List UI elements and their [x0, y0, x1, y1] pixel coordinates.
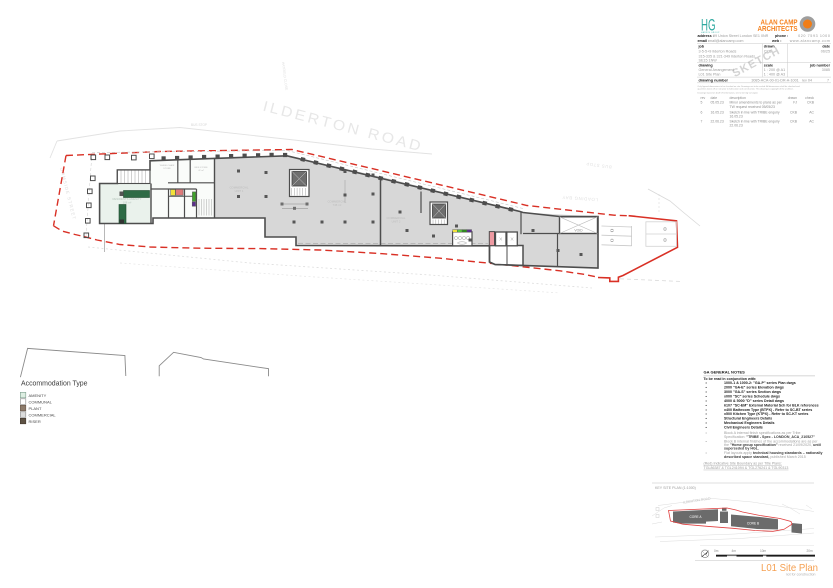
svg-text:COMMERCIAL: COMMERCIAL [29, 412, 57, 417]
svg-text:job: job [698, 45, 705, 49]
svg-text:CKB: CKB [790, 120, 798, 124]
svg-text:described space standard, publ: described space standard, published Marc… [724, 455, 806, 459]
svg-text:20m: 20m [807, 549, 814, 553]
svg-text:AC: AC [809, 120, 814, 124]
svg-text:KEY SITE PLAN (1:1000): KEY SITE PLAN (1:1000) [655, 486, 696, 490]
svg-text:BIKE STORE: BIKE STORE [194, 167, 208, 169]
svg-text:CKB: CKB [807, 101, 815, 105]
svg-text:www.alancamp.com: www.alancamp.com [790, 39, 831, 43]
svg-text:VOID: VOID [574, 229, 583, 233]
svg-text:6: 6 [701, 111, 703, 115]
svg-text:drawing number: drawing number [699, 78, 729, 82]
svg-text:05.05.23: 05.05.23 [711, 101, 724, 105]
svg-text:7: 7 [701, 120, 703, 124]
svg-text:Civil Engineers Details: Civil Engineers Details [724, 426, 763, 430]
svg-text:web :: web : [771, 39, 781, 43]
svg-text:L01 Site Plan: L01 Site Plan [699, 73, 721, 77]
svg-text:BUS STOP: BUS STOP [191, 123, 207, 127]
svg-text:22.06.23: 22.06.23 [730, 124, 743, 128]
svg-text:drawn: drawn [788, 96, 797, 100]
svg-text:CORE A: CORE A [689, 515, 702, 519]
svg-text:job number: job number [809, 64, 831, 68]
svg-text:description: description [730, 96, 747, 100]
svg-text:General Arrangement: General Arrangement [699, 68, 734, 72]
svg-text:x500 Kitchen Type (KTPX) - Ref: x500 Kitchen Type (KTPX) - Refer to SC-K… [724, 412, 808, 416]
svg-text:4000 & 5000 "D" series Detail: 4000 & 5000 "D" series Detail dwgs [724, 399, 784, 403]
svg-text:3000 "GA-S" series Section dwg: 3000 "GA-S" series Section dwgs [724, 390, 781, 394]
svg-text:1 : 400 @ A3: 1 : 400 @ A3 [764, 73, 785, 77]
svg-text:UNIT 2: UNIT 2 [392, 220, 401, 224]
svg-text:check: check [805, 96, 814, 100]
svg-text:(Red) Indicative Site Boundary: (Red) Indicative Site Boundary as per Ti… [704, 461, 782, 465]
svg-text:drawing: drawing [699, 64, 713, 68]
svg-text:superseded by HGL.: superseded by HGL. [724, 447, 759, 451]
svg-text:GA GENERAL NOTES: GA GENERAL NOTES [704, 370, 746, 375]
svg-text:rev: rev [701, 96, 706, 100]
svg-text:PLANT: PLANT [29, 406, 42, 411]
svg-text:x000 "SC" series Schedule dwgs: x000 "SC" series Schedule dwgs [724, 394, 780, 398]
svg-text:1 : 200 @ A1: 1 : 200 @ A1 [764, 68, 785, 72]
svg-text:108 m²: 108 m² [123, 201, 132, 205]
svg-text:4m: 4m [732, 549, 737, 553]
svg-text:10m: 10m [760, 549, 767, 553]
svg-text:UNIT 1: UNIT 1 [235, 189, 244, 193]
svg-text:2000 "GA-E" series Elevation d: 2000 "GA-E" series Elevation dwgs [724, 386, 784, 390]
svg-text:WHEELCHAIR: WHEELCHAIR [160, 164, 175, 167]
svg-text:STORE: STORE [163, 168, 171, 170]
svg-text:phone :: phone : [775, 34, 788, 38]
svg-text:745 m²: 745 m² [333, 203, 342, 207]
svg-text:3085-ACA-00-01-DR-A-1001 rev: 3085-ACA-00-01-DR-A-1001 rev 04 [751, 78, 812, 82]
svg-text:Structural Engineers Details: Structural Engineers Details [724, 417, 772, 421]
svg-text:Specification: "TRIBE - Spec -: Specification: "TRIBE - Spec - LONDON_AC… [724, 435, 815, 439]
svg-text:06/25: 06/25 [821, 50, 830, 54]
svg-text:6107 "SC-EM" External Material: 6107 "SC-EM" External Material Sch for B… [724, 403, 819, 407]
svg-text:020 7593 1000: 020 7593 1000 [798, 34, 830, 38]
svg-text:AMENITY: AMENITY [29, 393, 47, 398]
svg-text:TW request received 05/05/23: TW request received 05/05/23 [730, 105, 776, 109]
svg-text:AC: AC [809, 111, 814, 115]
svg-text:SE15 1NW: SE15 1NW [699, 59, 718, 63]
svg-text:address :: address : [698, 34, 714, 38]
svg-text:7: 7 [827, 78, 829, 82]
svg-text:3-5-5+9 Ilderton Roads: 3-5-5+9 Ilderton Roads [699, 50, 737, 54]
svg-text:0m: 0m [714, 549, 719, 553]
svg-text:3085: 3085 [822, 68, 830, 72]
svg-text:TGL86387 & TGL241094 & TGL2762: TGL86387 & TGL241094 & TGL276241 & TGL90… [704, 466, 789, 470]
svg-text:16.05.23: 16.05.23 [730, 115, 743, 119]
svg-text:email :: email : [698, 39, 710, 43]
svg-text:Accommodation Type: Accommodation Type [21, 378, 88, 387]
svg-text:1000-1 & 1000-2: "GA-P" series: 1000-1 & 1000-2: "GA-P" series Plan dwgs [724, 381, 796, 385]
svg-text:quantities taken off on site p: quantities taken off on site prior to fa… [698, 88, 794, 91]
svg-text:CORE B: CORE B [747, 522, 759, 526]
svg-text:22.06.23: 22.06.23 [711, 120, 724, 124]
svg-text:mail@alancamp.com: mail@alancamp.com [709, 39, 743, 43]
svg-text:date: date [711, 96, 718, 100]
svg-text:FJ: FJ [793, 101, 797, 105]
svg-text:42 m²: 42 m² [198, 169, 204, 172]
svg-text:Only figured dimensions to be: Only figured dimensions to be checked on… [698, 85, 801, 88]
svg-text:COMMUNAL: COMMUNAL [29, 399, 53, 404]
svg-text:5: 5 [701, 101, 703, 105]
svg-text:date: date [822, 45, 830, 49]
svg-text:99 Union Street London SE1 0NR: 99 Union Street London SE1 0NR [713, 34, 769, 38]
svg-text:Mechanical Engineers Details: Mechanical Engineers Details [724, 421, 775, 425]
svg-text:x400 Bathroom Type (BTPX) - Re: x400 Bathroom Type (BTPX) - Refer to SC-… [724, 408, 812, 412]
svg-text:CKB: CKB [790, 111, 798, 115]
svg-text:RISER: RISER [29, 419, 41, 424]
svg-text:16.05.23: 16.05.23 [711, 111, 724, 115]
svg-text:ARCHITECTS: ARCHITECTS [758, 24, 798, 33]
svg-text:Drawings based on draft OS inf: Drawings based on draft OS information, … [698, 91, 759, 94]
svg-text:not for construction: not for construction [786, 572, 816, 576]
